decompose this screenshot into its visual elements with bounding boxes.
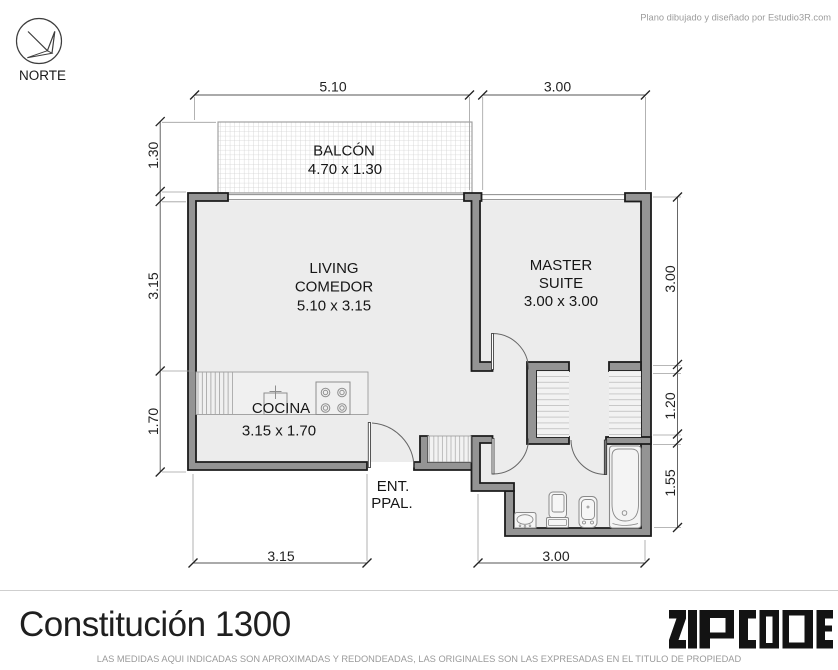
svg-text:PPAL.: PPAL. [371,495,412,512]
svg-text:1.20: 1.20 [662,392,678,419]
svg-text:1.30: 1.30 [145,141,161,168]
svg-text:Constitución 1300: Constitución 1300 [19,605,291,644]
svg-text:BALCÓN: BALCÓN [313,143,375,160]
svg-text:3.00: 3.00 [542,548,569,564]
svg-text:NORTE: NORTE [19,68,66,83]
svg-text:LIVING: LIVING [309,260,358,277]
svg-text:3.15: 3.15 [145,272,161,299]
svg-text:LAS MEDIDAS AQUI INDICADAS SON: LAS MEDIDAS AQUI INDICADAS SON APROXIMAD… [97,654,742,664]
svg-text:COCINA: COCINA [252,400,310,417]
svg-text:Plano dibujado y diseñado por: Plano dibujado y diseñado por Estudio3R.… [640,13,831,23]
svg-text:3.15: 3.15 [267,548,294,564]
svg-text:SUITE: SUITE [539,275,583,292]
svg-text:3.00: 3.00 [662,265,678,292]
svg-text:5.10 x 3.15: 5.10 x 3.15 [297,298,371,315]
svg-text:ENT.: ENT. [377,478,410,495]
svg-text:3.00 x 3.00: 3.00 x 3.00 [524,293,598,310]
svg-text:1.70: 1.70 [145,408,161,435]
svg-text:COMEDOR: COMEDOR [295,279,374,296]
svg-text:4.70 x 1.30: 4.70 x 1.30 [308,161,382,178]
svg-text:5.10: 5.10 [319,79,346,95]
svg-text:3.15 x 1.70: 3.15 x 1.70 [242,423,316,440]
svg-text:MASTER: MASTER [530,257,593,274]
svg-text:1.55: 1.55 [662,469,678,496]
svg-text:3.00: 3.00 [544,79,571,95]
